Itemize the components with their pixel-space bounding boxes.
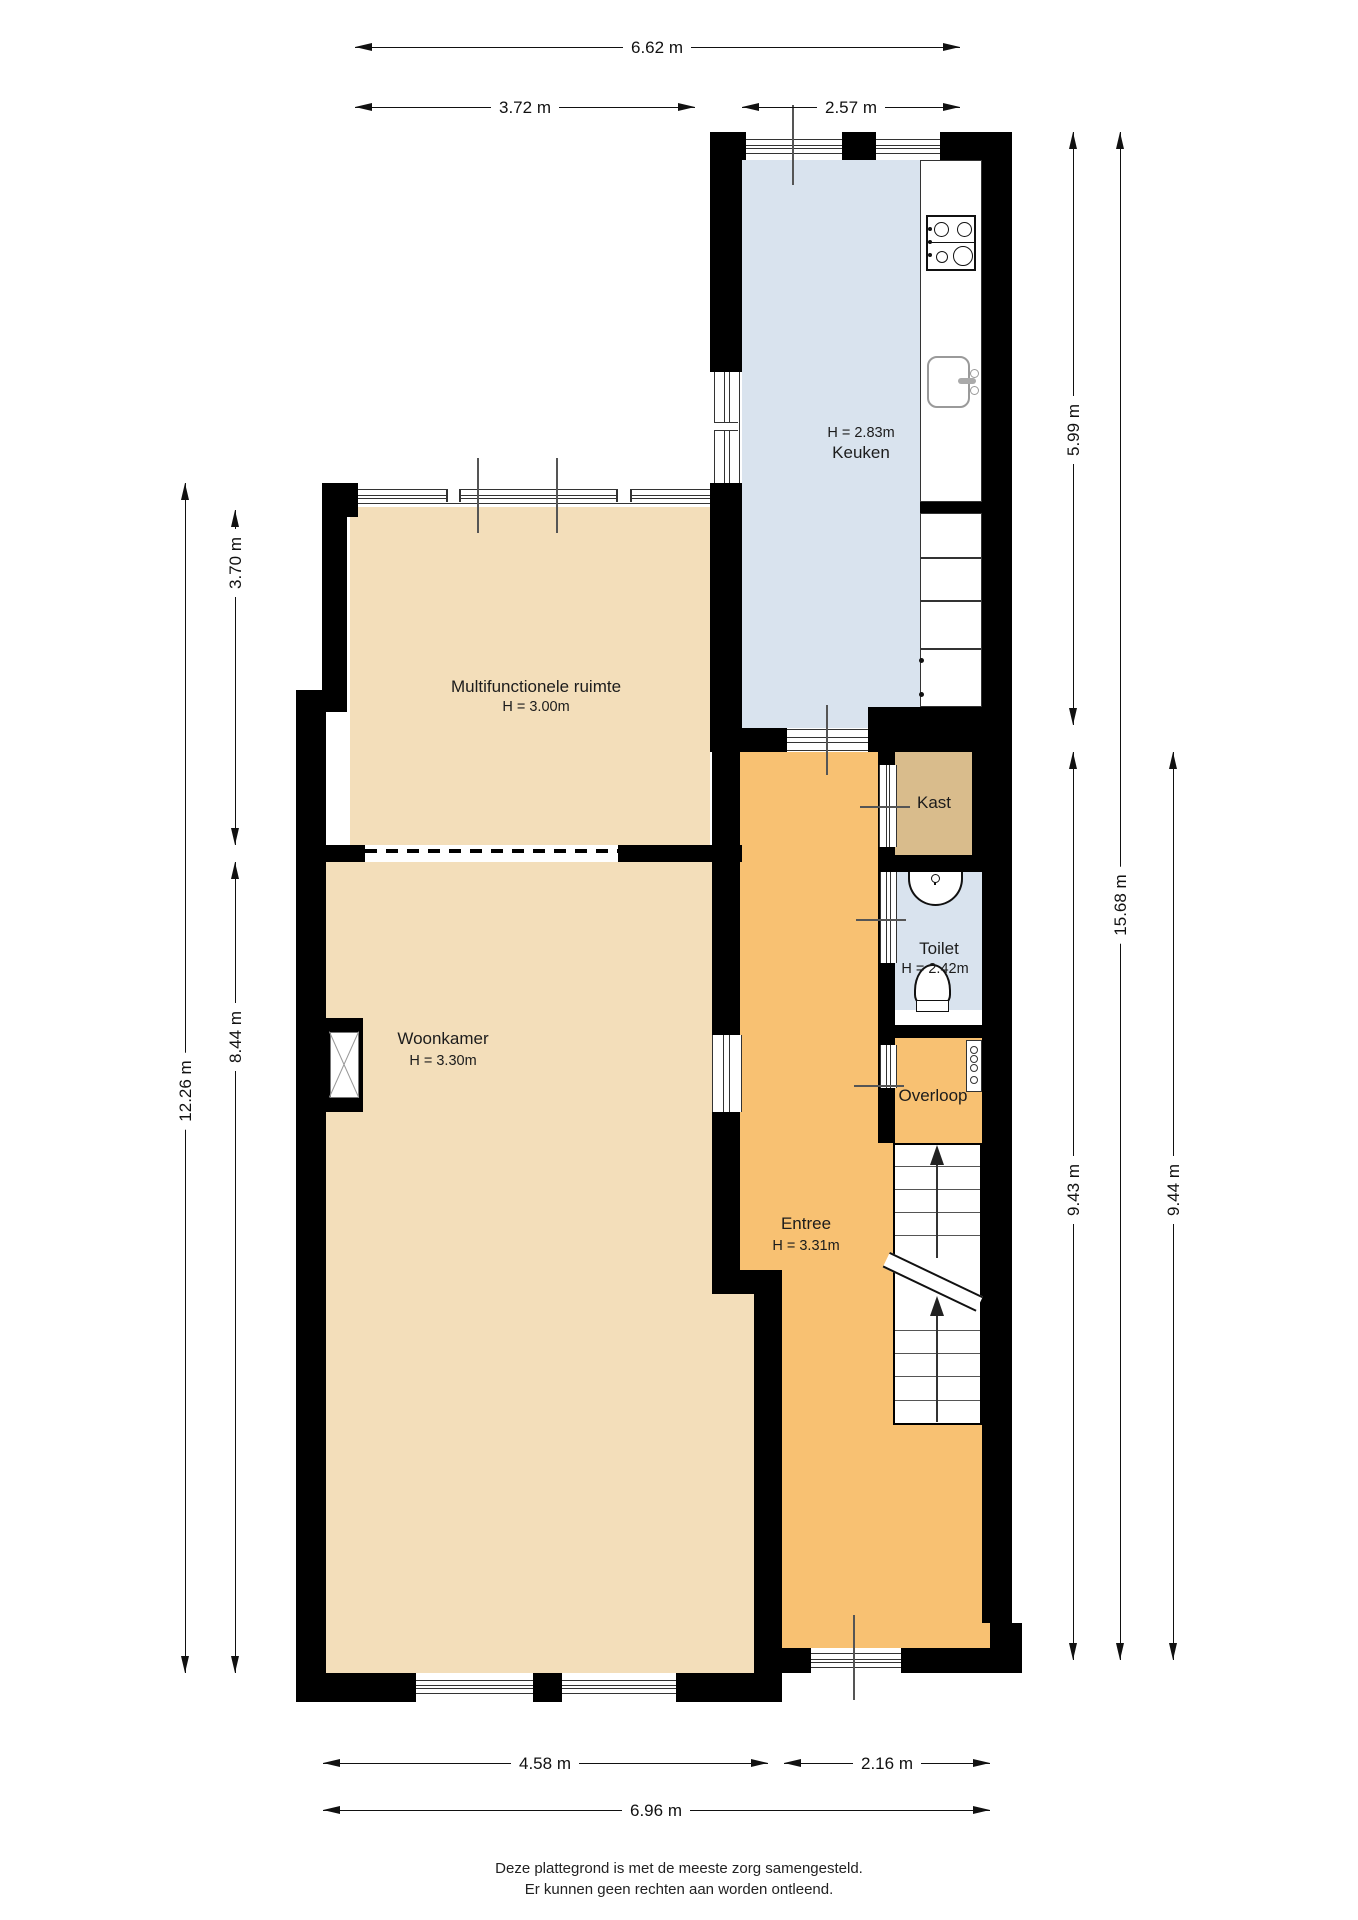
arrow-down-icon xyxy=(181,1656,189,1673)
stair-tread xyxy=(895,1235,980,1236)
tick xyxy=(853,1615,855,1700)
dim-top-right-label: 2.57 m xyxy=(817,98,885,118)
dim-right-lower-outer-label: 9.44 m xyxy=(1164,1156,1184,1224)
arrow-down-icon xyxy=(1069,708,1077,725)
arrow-left-icon xyxy=(742,103,759,111)
dim-bottom-right-label: 2.16 m xyxy=(853,1754,921,1774)
multifunc-window-mullion-left xyxy=(446,489,461,502)
dim-right-upper-label: 5.99 m xyxy=(1064,396,1084,464)
arrow-left-icon xyxy=(355,43,372,51)
dim-left-lower-line xyxy=(235,862,236,1673)
wall-kitchen-bottom-right xyxy=(868,707,1012,752)
wall-kitchen-left-lower xyxy=(710,483,742,752)
arrow-down-icon xyxy=(1069,1643,1077,1660)
toilet-height-label: H = 2.42m xyxy=(901,961,968,977)
keuken-left-window-sill xyxy=(714,422,738,431)
stove-grid-line xyxy=(928,242,974,243)
dim-top-total-label: 6.62 m xyxy=(623,38,691,58)
stove-burner-3 xyxy=(936,251,948,263)
multifunc-window-mullion-right xyxy=(616,489,632,502)
keuken-label: Keuken xyxy=(832,443,890,463)
kitchen-cabinets xyxy=(920,513,982,707)
arrow-down-icon xyxy=(231,828,239,845)
arrow-down-icon xyxy=(1169,1643,1177,1660)
meter-dial-2 xyxy=(970,1055,978,1063)
keuken-sliding-door xyxy=(787,729,868,751)
entree-height-label: H = 3.31m xyxy=(772,1238,839,1254)
wall-entree-woonkamer-lower xyxy=(754,1294,782,1673)
room-opening-dashed-line xyxy=(365,849,618,853)
wall-woonkamer-bottom-right xyxy=(676,1673,782,1702)
woonkamer-floor xyxy=(326,862,754,1673)
overloop-door xyxy=(880,1045,897,1088)
dim-left-lower-label: 8.44 m xyxy=(226,1003,246,1071)
entree-floor-notch xyxy=(967,1623,990,1648)
stove-knob-1 xyxy=(928,227,932,231)
dim-left-upper-label: 3.70 m xyxy=(226,529,246,597)
dim-bottom-total-label: 6.96 m xyxy=(622,1801,690,1821)
dim-top-left-label: 3.72 m xyxy=(491,98,559,118)
arrow-up-icon xyxy=(231,862,239,879)
tick xyxy=(860,806,910,808)
multifunc-top-window xyxy=(358,489,710,504)
meter-dial-4 xyxy=(970,1076,978,1084)
woonkamer-label: Woonkamer xyxy=(397,1029,488,1049)
dim-left-total-label: 12.26 m xyxy=(176,1052,196,1129)
woonkamer-bottom-window-right xyxy=(562,1680,676,1694)
stair-tread xyxy=(895,1376,980,1377)
footer-disclaimer-line-1: Deze plattegrond is met de meeste zorg s… xyxy=(0,1860,1358,1877)
tick xyxy=(854,1085,904,1087)
toilet-shelf-strip xyxy=(895,1010,982,1025)
wall-opening-stub-left xyxy=(296,845,365,862)
keuken-top-window-left xyxy=(746,139,842,154)
arrow-up-icon xyxy=(1069,132,1077,149)
keuken-top-window-right xyxy=(876,139,940,154)
tick xyxy=(792,105,794,185)
multifunctionele-ruimte-label: Multifunctionele ruimte xyxy=(451,677,621,697)
meter-dial-1 xyxy=(970,1046,978,1054)
toilet-label: Toilet xyxy=(919,939,959,959)
wall-top-pier xyxy=(842,132,876,160)
wall-entree-woonkamer-upper xyxy=(712,752,740,1035)
dim-right-total-label: 15.68 m xyxy=(1111,866,1131,943)
wall-woonkamer-bottom-pier xyxy=(533,1673,562,1702)
floor-plan-page: H = 2.83m Keuken Multifunctionele ruimte… xyxy=(0,0,1358,1920)
stove-burner-2 xyxy=(957,222,972,237)
toilet-sink-tap xyxy=(931,874,940,883)
front-door xyxy=(811,1653,901,1668)
cabinet-divider-1 xyxy=(920,557,982,559)
arrow-right-icon xyxy=(678,103,695,111)
stair-arrow-lower-head xyxy=(930,1296,944,1316)
arrow-left-icon xyxy=(355,103,372,111)
footer-disclaimer-line-2: Er kunnen geen rechten aan worden ontlee… xyxy=(0,1881,1358,1898)
stove-burner-4 xyxy=(953,246,973,266)
arrow-down-icon xyxy=(1116,1643,1124,1660)
wall-toilet-bottom xyxy=(878,1025,1012,1038)
dim-right-lower-inner-label: 9.43 m xyxy=(1064,1156,1084,1224)
stair-tread xyxy=(895,1189,980,1190)
arrow-right-icon xyxy=(973,1759,990,1767)
entree-label: Entree xyxy=(781,1214,831,1234)
wall-kast-right xyxy=(972,752,982,855)
woonkamer-entree-window xyxy=(712,1035,742,1112)
wall-top-corner-left xyxy=(710,132,746,160)
wall-left-step xyxy=(296,690,347,712)
arrow-up-icon xyxy=(1169,752,1177,769)
arrow-right-icon xyxy=(751,1759,768,1767)
stove-burner-1 xyxy=(934,222,949,237)
arrow-down-icon xyxy=(231,1656,239,1673)
wall-right xyxy=(982,132,1012,1623)
tick xyxy=(477,458,479,533)
arrow-left-icon xyxy=(323,1806,340,1814)
wall-kitchen-left-upper xyxy=(710,132,742,372)
kitchen-sink-faucet xyxy=(958,378,976,384)
cabinet-divider-2 xyxy=(920,600,982,602)
stair-arrow-upper-head xyxy=(930,1145,944,1165)
stair-arrow-upper-line xyxy=(936,1162,938,1258)
wall-multifunc-left-corner xyxy=(322,483,358,517)
wall-entree-step xyxy=(712,1270,782,1294)
stair-tread xyxy=(895,1400,980,1401)
keuken-height-label: H = 2.83m xyxy=(827,425,894,441)
multifunctionele-ruimte-height-label: H = 3.00m xyxy=(502,699,569,715)
arrow-right-icon xyxy=(943,103,960,111)
cabinet-hinge-2 xyxy=(919,692,924,697)
multifunctionele-ruimte-floor xyxy=(350,507,710,845)
stair-tread xyxy=(895,1212,980,1213)
kast-label: Kast xyxy=(917,793,951,813)
tick xyxy=(856,919,906,921)
arrow-up-icon xyxy=(231,510,239,527)
wall-entree-woonkamer-mid xyxy=(712,1112,740,1270)
kitchen-sink-faucet-knob-1 xyxy=(970,369,979,378)
arrow-left-icon xyxy=(784,1759,801,1767)
wall-right-bottom-step xyxy=(990,1623,1022,1673)
arrow-right-icon xyxy=(943,43,960,51)
woonkamer-height-label: H = 3.30m xyxy=(409,1053,476,1069)
arrow-right-icon xyxy=(973,1806,990,1814)
stair-tread xyxy=(895,1353,980,1354)
stair-tread xyxy=(895,1166,980,1167)
meter-dial-3 xyxy=(970,1064,978,1072)
stove-knob-2 xyxy=(928,240,932,244)
toilet-door xyxy=(880,872,897,963)
arrow-up-icon xyxy=(1116,132,1124,149)
overloop-label: Overloop xyxy=(899,1086,968,1106)
kitchen-counter xyxy=(920,160,982,502)
arrow-left-icon xyxy=(323,1759,340,1767)
wall-entree-bottom-left xyxy=(782,1648,811,1673)
stove-knob-3 xyxy=(928,253,932,257)
arrow-up-icon xyxy=(1069,752,1077,769)
dim-bottom-left-label: 4.58 m xyxy=(511,1754,579,1774)
cabinet-hinge-1 xyxy=(919,658,924,663)
cabinet-divider-3 xyxy=(920,648,982,650)
wall-counter-bottom xyxy=(920,502,982,513)
tick xyxy=(826,705,828,775)
wall-multifunc-left xyxy=(322,517,347,690)
wall-entree-bottom-right xyxy=(901,1648,990,1673)
wall-kast-bottom xyxy=(878,855,1012,872)
stair-arrow-lower-line xyxy=(936,1314,938,1422)
tick xyxy=(556,458,558,533)
arrow-up-icon xyxy=(181,483,189,500)
stair-tread xyxy=(895,1330,980,1331)
kitchen-sink-faucet-knob-2 xyxy=(970,386,979,395)
woonkamer-bottom-window-left xyxy=(416,1680,533,1694)
wall-kitchen-bottom-left xyxy=(710,728,787,752)
wc-cistern xyxy=(916,1000,949,1012)
